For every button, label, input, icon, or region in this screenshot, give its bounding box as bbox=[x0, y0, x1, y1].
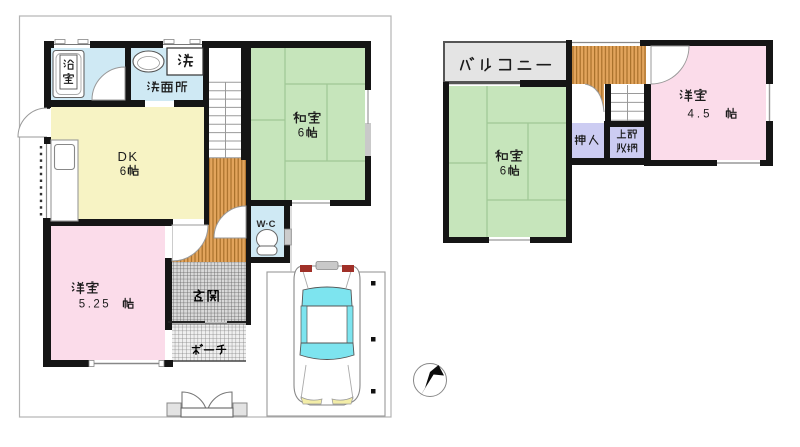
svg-text:4.5: 4.5 bbox=[688, 109, 713, 121]
svg-text:6: 6 bbox=[120, 166, 126, 178]
svg-text:6: 6 bbox=[298, 128, 304, 140]
svg-text:5.25: 5.25 bbox=[79, 299, 111, 311]
svg-text:6: 6 bbox=[500, 166, 506, 178]
svg-text:DK: DK bbox=[117, 149, 138, 164]
svg-text:W·C: W·C bbox=[257, 219, 276, 230]
